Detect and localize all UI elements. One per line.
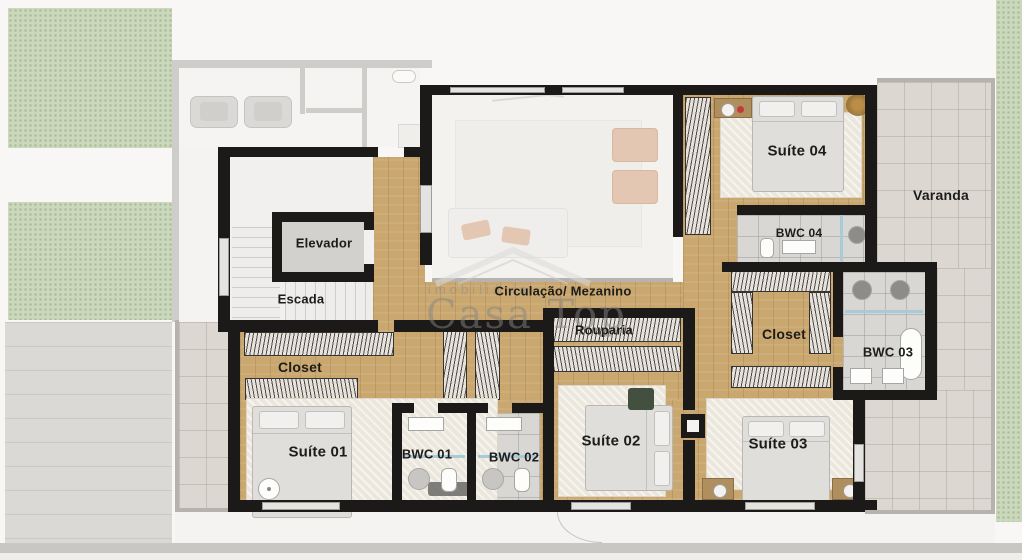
window	[450, 87, 545, 93]
wardrobe-closet-suite01	[245, 378, 358, 400]
hedge-left	[8, 202, 172, 320]
pavement-left	[5, 322, 172, 555]
car-roof	[254, 102, 282, 121]
varanda-railing	[865, 510, 995, 514]
wall	[925, 262, 937, 400]
room-label-varanda: Varanda	[913, 187, 969, 203]
pillow	[305, 411, 345, 429]
toilet-bwc01	[441, 468, 457, 492]
elevator-door	[364, 230, 374, 264]
room-label-bwc04: BWC 04	[776, 226, 823, 240]
shower-glass-bwc04	[840, 215, 843, 261]
floor-varanda-top	[877, 82, 991, 268]
duvet-line	[753, 121, 843, 122]
room-label-escada: Escada	[278, 292, 325, 307]
pillow	[654, 451, 670, 486]
pillow	[801, 101, 837, 117]
bed-suite03	[742, 416, 830, 506]
varanda-railing	[877, 78, 993, 82]
wall	[833, 367, 843, 400]
room-label-bwc03: BWC 03	[863, 345, 913, 360]
garden-right	[996, 0, 1022, 522]
wall	[392, 403, 414, 413]
ghost-toilet-icon	[392, 70, 416, 83]
wall	[467, 413, 476, 512]
wardrobe-closet-suite03	[809, 292, 831, 354]
shower-glass-bwc03	[845, 310, 923, 313]
toilet-bwc02	[514, 468, 530, 492]
wall	[512, 403, 543, 413]
wall	[683, 308, 695, 410]
wardrobe-closet-suite01	[244, 332, 394, 356]
wall	[420, 85, 432, 185]
wardrobe-rouparia	[553, 346, 681, 372]
balcony-railing	[175, 320, 179, 512]
pouf-icon	[258, 478, 280, 500]
duvet-line	[253, 433, 351, 434]
ghost-partition	[362, 68, 367, 147]
floor-varanda-mid	[937, 268, 991, 390]
room-label-closet-suite01: Closet	[278, 359, 322, 375]
varanda-railing	[991, 78, 995, 514]
ghost-wall	[172, 60, 179, 322]
wall	[673, 85, 683, 237]
sink-bwc03	[882, 368, 904, 384]
lamp-icon	[713, 484, 727, 498]
floor-balcony-left	[179, 322, 228, 508]
room-label-closet-suite03: Closet	[762, 326, 806, 342]
room-label-rouparia: Rouparia	[575, 323, 633, 338]
room-label-suite01: Suíte 01	[288, 444, 347, 461]
window	[854, 444, 864, 482]
wall	[404, 147, 432, 157]
window	[571, 502, 631, 510]
ghost-partition	[306, 108, 362, 113]
vanity-bwc01	[408, 417, 444, 431]
car-icon	[190, 96, 238, 128]
floor-varanda-bottom	[865, 390, 991, 510]
sink-bwc03	[850, 368, 872, 384]
window	[745, 502, 815, 510]
room-label-bwc01: BWC 01	[402, 447, 452, 462]
wall	[833, 262, 843, 337]
shower-head-bwc03	[890, 280, 910, 300]
wardrobe-closet-suite03	[731, 366, 831, 388]
wall	[438, 403, 488, 413]
room-label-bwc02: BWC 02	[489, 450, 539, 465]
door-jamb-inner	[687, 420, 699, 432]
window	[562, 87, 624, 93]
vanity-bwc04	[782, 240, 816, 254]
wardrobe-suite04	[685, 97, 711, 235]
armchair-icon	[612, 170, 658, 204]
door-jamb	[681, 414, 705, 438]
pillow	[654, 411, 670, 446]
shower-drain-bwc01	[408, 468, 430, 490]
wall	[543, 308, 554, 512]
wall	[722, 262, 937, 272]
pillow	[759, 101, 795, 117]
room-label-elevador: Elevador	[296, 236, 353, 251]
nightstand	[714, 98, 752, 118]
garden-top-left	[8, 8, 172, 148]
car-roof	[200, 102, 228, 121]
window	[420, 185, 432, 233]
vanity-bwc02	[486, 417, 522, 431]
wall	[737, 205, 877, 215]
bottom-curb	[0, 543, 1022, 553]
window	[262, 502, 340, 510]
room-label-suite04: Suíte 04	[767, 143, 826, 160]
room-label-suite03: Suíte 03	[748, 436, 807, 453]
balcony-railing	[175, 508, 228, 512]
decor-red-dot	[737, 106, 744, 113]
floor-plan: imobiliária Casa Top Elevador Escada Cir…	[0, 0, 1022, 560]
wall	[228, 320, 378, 332]
wall	[683, 440, 695, 512]
car-icon	[244, 96, 292, 128]
lamp-icon	[721, 103, 735, 117]
room-label-suite02: Suíte 02	[581, 433, 640, 450]
bottom-sidewalk	[0, 553, 1022, 560]
ghost-wall	[172, 60, 432, 68]
ghost-side-strip	[179, 147, 218, 322]
pouf-dot	[267, 487, 271, 491]
nightstand	[702, 478, 734, 500]
dark-cushion	[628, 388, 654, 410]
pillow	[259, 411, 299, 429]
ghost-partition	[300, 68, 305, 114]
room-label-circulacao: Circulação/ Mezanino	[495, 284, 632, 299]
toilet-bwc04	[760, 238, 774, 258]
wardrobe-closet-suite03	[731, 292, 753, 354]
wall	[392, 403, 402, 512]
duvet-line	[646, 406, 647, 490]
shower-head-bwc03	[852, 280, 872, 300]
wall	[218, 147, 378, 157]
wall	[865, 85, 877, 272]
shower-drain-bwc02	[482, 468, 504, 490]
window	[219, 238, 229, 296]
shower-head-bwc04	[848, 226, 866, 244]
armchair-icon	[612, 128, 658, 162]
wall	[228, 320, 240, 512]
floor-corridor-vertical	[373, 157, 425, 332]
